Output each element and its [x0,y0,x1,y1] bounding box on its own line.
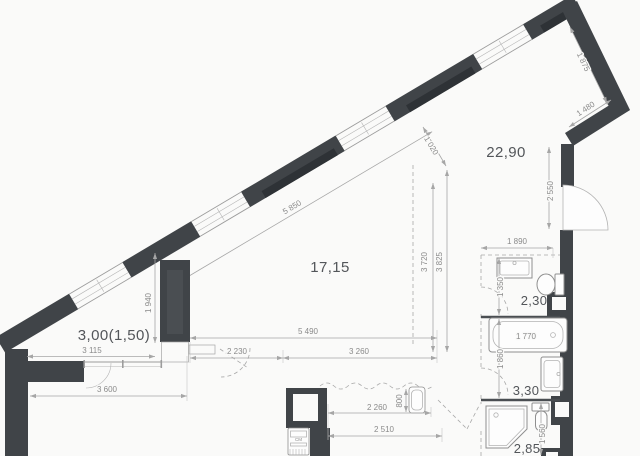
washbasin-icon [541,357,563,391]
svg-text:3 825: 3 825 [435,251,444,272]
room-label-bath: 3,30 [513,383,540,398]
floor-plan-svg: 5 850 [0,0,640,456]
wall-pier-leg [160,260,190,342]
room-label-balcony: 3,00(1,50) [78,327,150,344]
svg-text:1 770: 1 770 [516,332,537,341]
svg-text:2 550: 2 550 [546,180,555,201]
svg-text:1 860: 1 860 [496,348,505,369]
room-label-living: 22,90 [486,144,526,161]
washing-machine-icon: СМ [288,428,309,455]
svg-text:1 890: 1 890 [507,237,528,246]
appliance-label: СМ [295,437,302,442]
washbasin-icon [497,258,532,278]
svg-text:3 600: 3 600 [97,385,118,394]
svg-text:2 260: 2 260 [367,403,388,412]
dim-1770: 1 770 [516,332,537,341]
wall-end-cap [162,342,189,362]
toilet-icon [537,274,564,295]
svg-text:3 115: 3 115 [82,346,102,355]
svg-text:3 720: 3 720 [420,251,429,272]
floor-plan: 5 850 [0,0,640,456]
svg-text:3 260: 3 260 [349,347,370,356]
room-label-main: 17,15 [310,259,350,276]
room-label-wc-top: 2,30 [521,293,548,308]
vent-duct [541,448,573,456]
svg-text:800: 800 [395,394,404,408]
kitchen-sink-icon [409,387,425,413]
svg-text:2 230: 2 230 [227,347,248,356]
svg-text:2 510: 2 510 [374,425,395,434]
room-label-wc-bottom: 2,85 [514,441,541,456]
svg-text:1 350: 1 350 [496,276,505,297]
svg-text:1 940: 1 940 [144,292,153,313]
svg-text:5 490: 5 490 [298,327,319,336]
interior-wall-stub [189,345,215,354]
vent-duct [547,292,573,316]
